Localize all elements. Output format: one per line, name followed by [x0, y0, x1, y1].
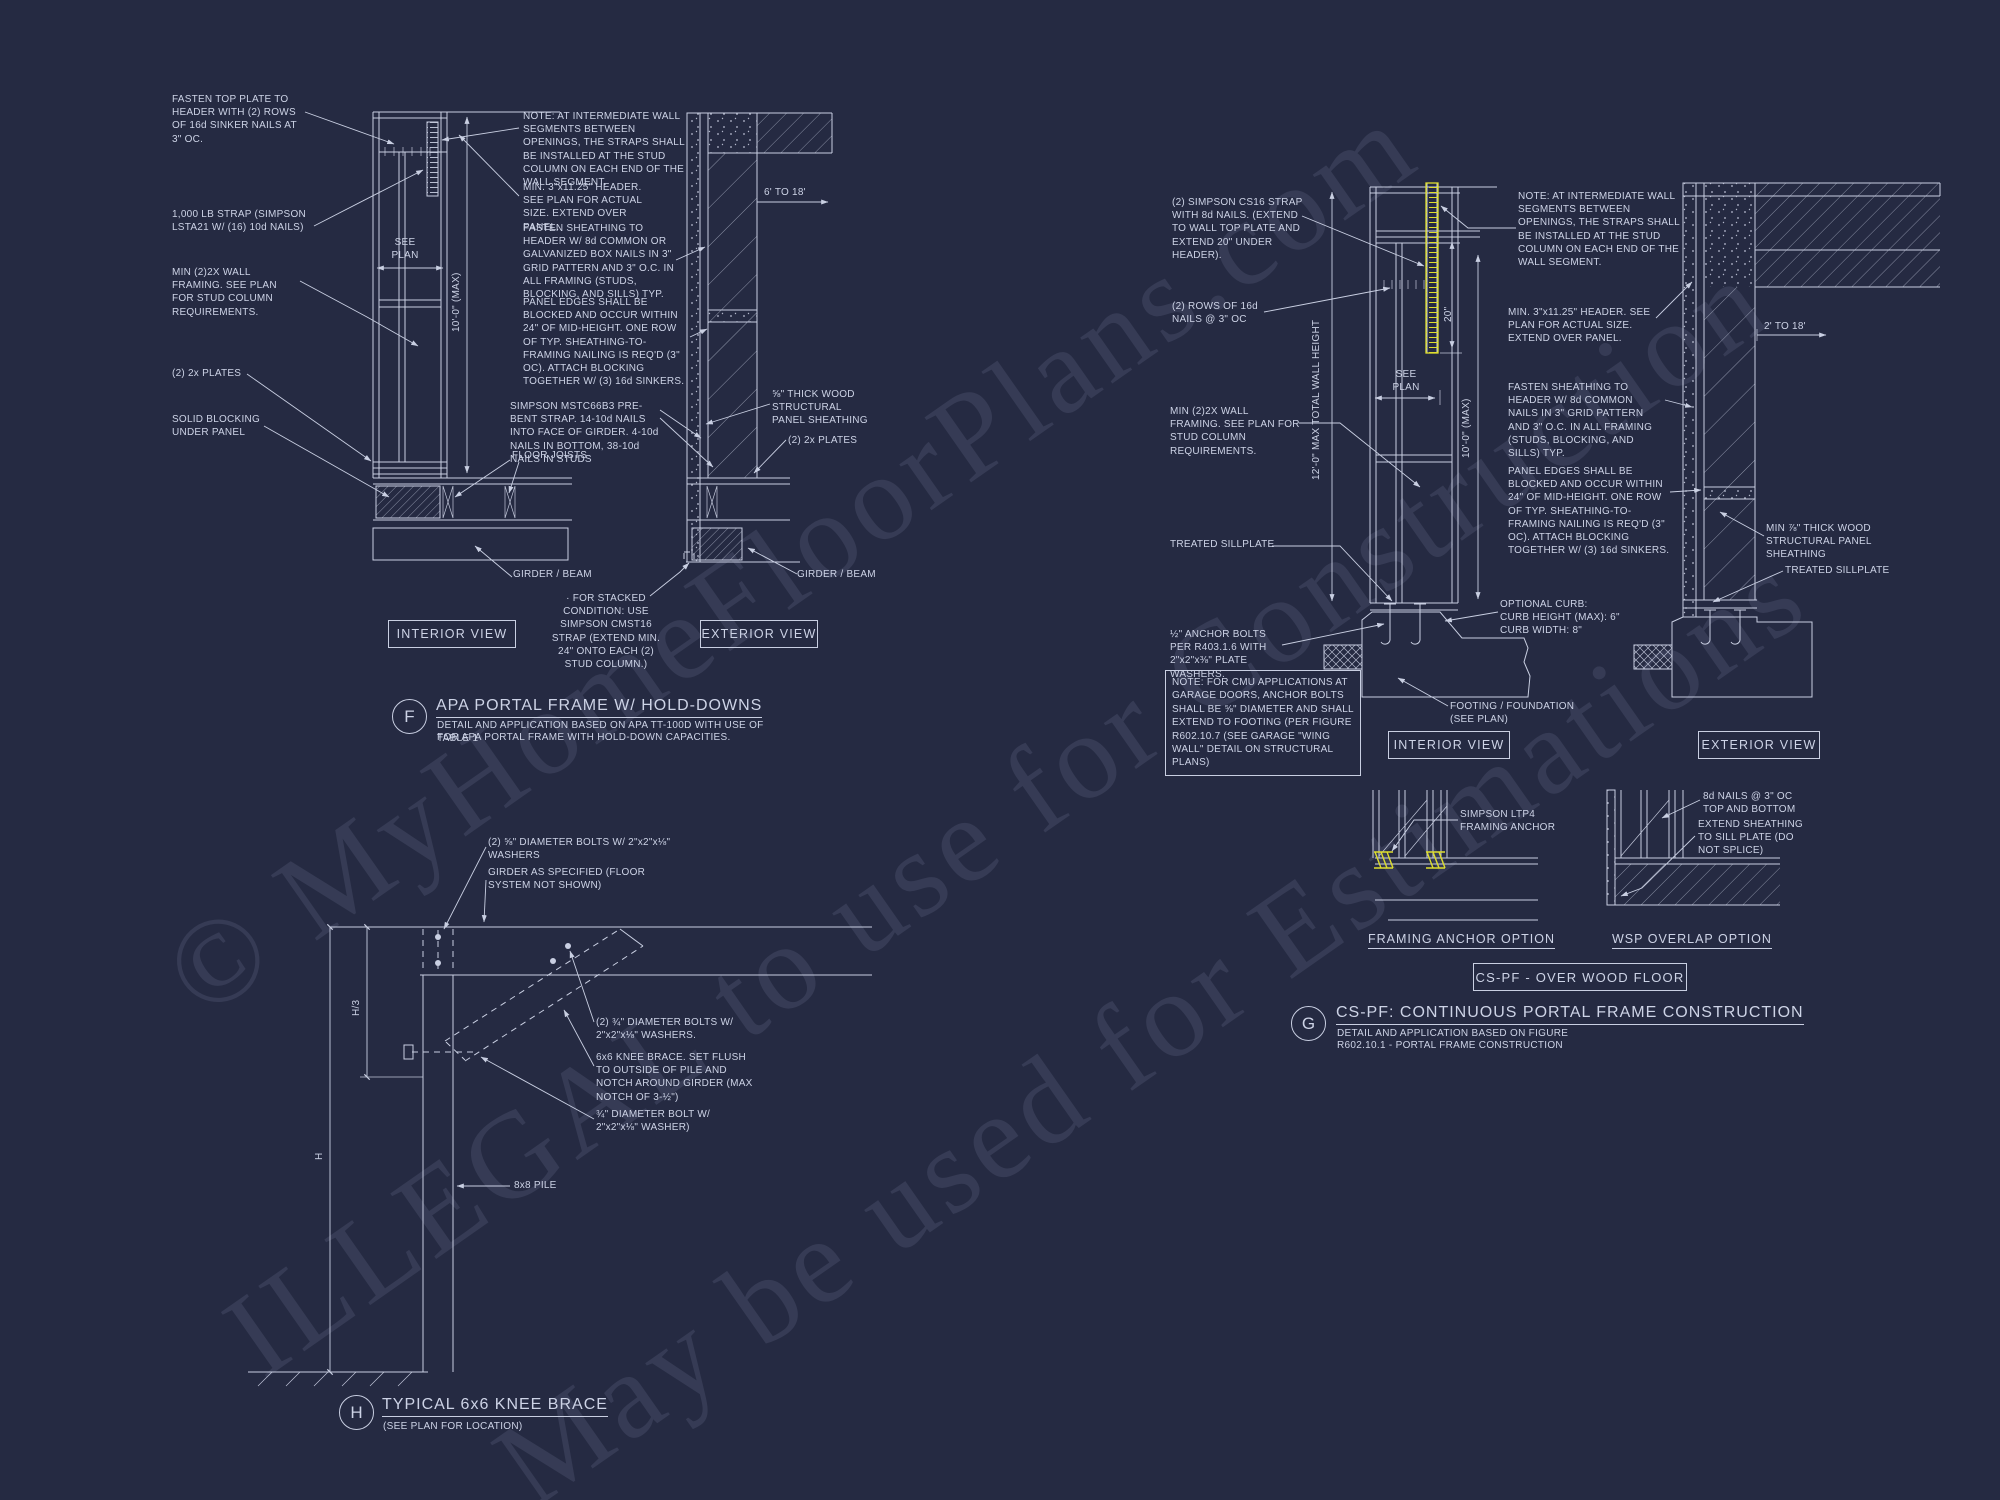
h-dim-h3: H/3	[350, 1000, 363, 1016]
f-label-fasten-sheathing: FASTEN SHEATHING TO HEADER W/ 8d COMMON …	[523, 222, 675, 301]
g-note-intermediate: NOTE: AT INTERMEDIATE WALL SEGMENTS BETW…	[1518, 190, 1684, 269]
g-label-treated-sillplate-left: TREATED SILLPLATE	[1170, 538, 1290, 551]
g-dim-wall-height: 12'-0" MAX TOTAL WALL HEIGHT	[1310, 320, 1323, 480]
f-label-girder-beam-right: GIRDER / BEAM	[797, 568, 907, 581]
h-detail-bubble: H	[339, 1395, 374, 1430]
g-label-footing: FOOTING / FOUNDATION (SEE PLAN)	[1450, 700, 1590, 726]
g-label-cs16-strap: (2) SIMPSON CS16 STRAP WITH 8d NAILS. (E…	[1172, 196, 1304, 262]
f-label-2x-plates-left: (2) 2x PLATES	[172, 367, 282, 380]
h-label-34-bolts: (2) ¾" DIAMETER BOLTS W/ 2"x2"x⅛" WASHER…	[596, 1016, 766, 1042]
h-detail-subtitle: (SEE PLAN FOR LOCATION)	[383, 1420, 603, 1433]
h-label-58-bolts: (2) ⅝" DIAMETER BOLTS W/ 2"x2"x⅛" WASHER…	[488, 836, 688, 862]
f-exterior-view-text: EXTERIOR VIEW	[702, 627, 817, 641]
f-label-see-plan: SEE PLAN	[382, 236, 428, 262]
g-framing-anchor-option-title: FRAMING ANCHOR OPTION	[1368, 932, 1555, 949]
g-label-panel-edges: PANEL EDGES SHALL BE BLOCKED AND OCCUR W…	[1508, 465, 1670, 557]
f-label-fasten-top-plate: FASTEN TOP PLATE TO HEADER WITH (2) ROWS…	[172, 93, 304, 146]
g-interior-view-text: INTERIOR VIEW	[1394, 738, 1505, 752]
f-label-min-wall-framing: MIN (2)2X WALL FRAMING. SEE PLAN FOR STU…	[172, 266, 300, 319]
g-dim-height-max: 10'-0" (MAX)	[1460, 398, 1473, 458]
f-detail-subtitle-2: FOR APA PORTAL FRAME WITH HOLD-DOWN CAPA…	[437, 731, 797, 744]
g-detail-letter: G	[1302, 1014, 1315, 1034]
f-exterior-view-label: EXTERIOR VIEW	[700, 620, 818, 648]
g-label-8d-nails: 8d NAILS @ 3" OC TOP AND BOTTOM	[1703, 790, 1815, 816]
h-detail-title: TYPICAL 6x6 KNEE BRACE	[382, 1396, 608, 1417]
f-label-floor-joists: FLOOR JOISTS	[512, 449, 602, 462]
f-label-girder-beam-left: GIRDER / BEAM	[513, 568, 623, 581]
f-interior-view-text: INTERIOR VIEW	[397, 627, 508, 641]
f-detail-title: APA PORTAL FRAME W/ HOLD-DOWNS	[436, 697, 762, 718]
g-wsp-overlap-option-title: WSP OVERLAP OPTION	[1612, 932, 1772, 949]
h-label-knee-brace: 6x6 KNEE BRACE. SET FLUSH TO OUTSIDE OF …	[596, 1051, 761, 1104]
h-label-34-bolt: ¾" DIAMETER BOLT W/ 2"x2"x⅛" WASHER)	[596, 1108, 736, 1134]
g-interior-view-label: INTERIOR VIEW	[1388, 731, 1510, 759]
detail-f-exterior-view-drawing	[687, 113, 832, 562]
f-detail-letter: F	[404, 707, 414, 727]
f-label-solid-blocking: SOLID BLOCKING UNDER PANEL	[172, 413, 284, 439]
g-exterior-view-label: EXTERIOR VIEW	[1698, 731, 1820, 759]
h-dim-h: H	[313, 1153, 326, 1160]
g-label-min-header: MIN. 3"x11.25" HEADER. SEE PLAN FOR ACTU…	[1508, 306, 1656, 346]
blueprint-sheet: © MyHomeFloorPlans.com ILLEGAL to use fo…	[0, 0, 2000, 1500]
g-label-optional-curb: OPTIONAL CURB: CURB HEIGHT (MAX): 6" CUR…	[1500, 598, 1630, 638]
f-dim-opening-range: 6' TO 18'	[764, 186, 844, 199]
g-label-extend-sheathing: EXTEND SHEATHING TO SILL PLATE (DO NOT S…	[1698, 818, 1810, 858]
f-note-stacked-condition: · FOR STACKED CONDITION: USE SIMPSON CMS…	[546, 592, 666, 671]
g-dim-20: 20"	[1442, 307, 1455, 322]
g-detail-title: CS-PF: CONTINUOUS PORTAL FRAME CONSTRUCT…	[1336, 1004, 1804, 1025]
g-label-see-plan: SEE PLAN	[1384, 368, 1428, 394]
f-detail-bubble: F	[392, 699, 427, 734]
g-label-rows-16d: (2) ROWS OF 16d NAILS @ 3" OC	[1172, 300, 1284, 326]
f-label-2x-plates-right: (2) 2x PLATES	[788, 434, 888, 447]
g-over-wood-floor-label: CS-PF - OVER WOOD FLOOR	[1473, 963, 1687, 991]
f-note-intermediate: NOTE: AT INTERMEDIATE WALL SEGMENTS BETW…	[523, 110, 687, 189]
f-label-1000lb-strap: 1,000 LB STRAP (SIMPSON LSTA21 W/ (16) 1…	[172, 208, 314, 234]
g-detail-bubble: G	[1291, 1006, 1326, 1041]
g-label-fasten-sheathing: FASTEN SHEATHING TO HEADER W/ 8d COMMON …	[1508, 381, 1664, 460]
g-exterior-view-text: EXTERIOR VIEW	[1702, 738, 1817, 752]
h-label-girder-specified: GIRDER AS SPECIFIED (FLOOR SYSTEM NOT SH…	[488, 866, 658, 892]
h-label-8x8-pile: 8x8 PILE	[514, 1179, 584, 1192]
g-label-ltp4-anchor: SIMPSON LTP4 FRAMING ANCHOR	[1460, 808, 1572, 834]
g-label-min-sheathing: MIN ⅞" THICK WOOD STRUCTURAL PANEL SHEAT…	[1766, 522, 1874, 562]
f-dim-height-max: 10'-0" (MAX)	[450, 272, 463, 332]
f-interior-view-label: INTERIOR VIEW	[388, 620, 516, 648]
h-detail-letter: H	[350, 1403, 362, 1423]
f-label-panel-edges: PANEL EDGES SHALL BE BLOCKED AND OCCUR W…	[523, 296, 689, 388]
g-detail-subtitle-2: R602.10.1 - PORTAL FRAME CONSTRUCTION	[1337, 1039, 1677, 1052]
g-label-min-wall-framing: MIN (2)2X WALL FRAMING. SEE PLAN FOR STU…	[1170, 405, 1300, 458]
g-label-treated-sillplate-right: TREATED SILLPLATE	[1785, 564, 1905, 577]
g-note-cmu: NOTE: FOR CMU APPLICATIONS AT GARAGE DOO…	[1165, 670, 1361, 776]
g-over-wood-floor-text: CS-PF - OVER WOOD FLOOR	[1476, 970, 1685, 985]
g-dim-opening-range: 2' TO 18'	[1764, 320, 1834, 333]
f-label-sheathing: ⅝" THICK WOOD STRUCTURAL PANEL SHEATHING	[772, 388, 876, 428]
detail-h-knee-brace-drawing	[248, 847, 872, 1386]
